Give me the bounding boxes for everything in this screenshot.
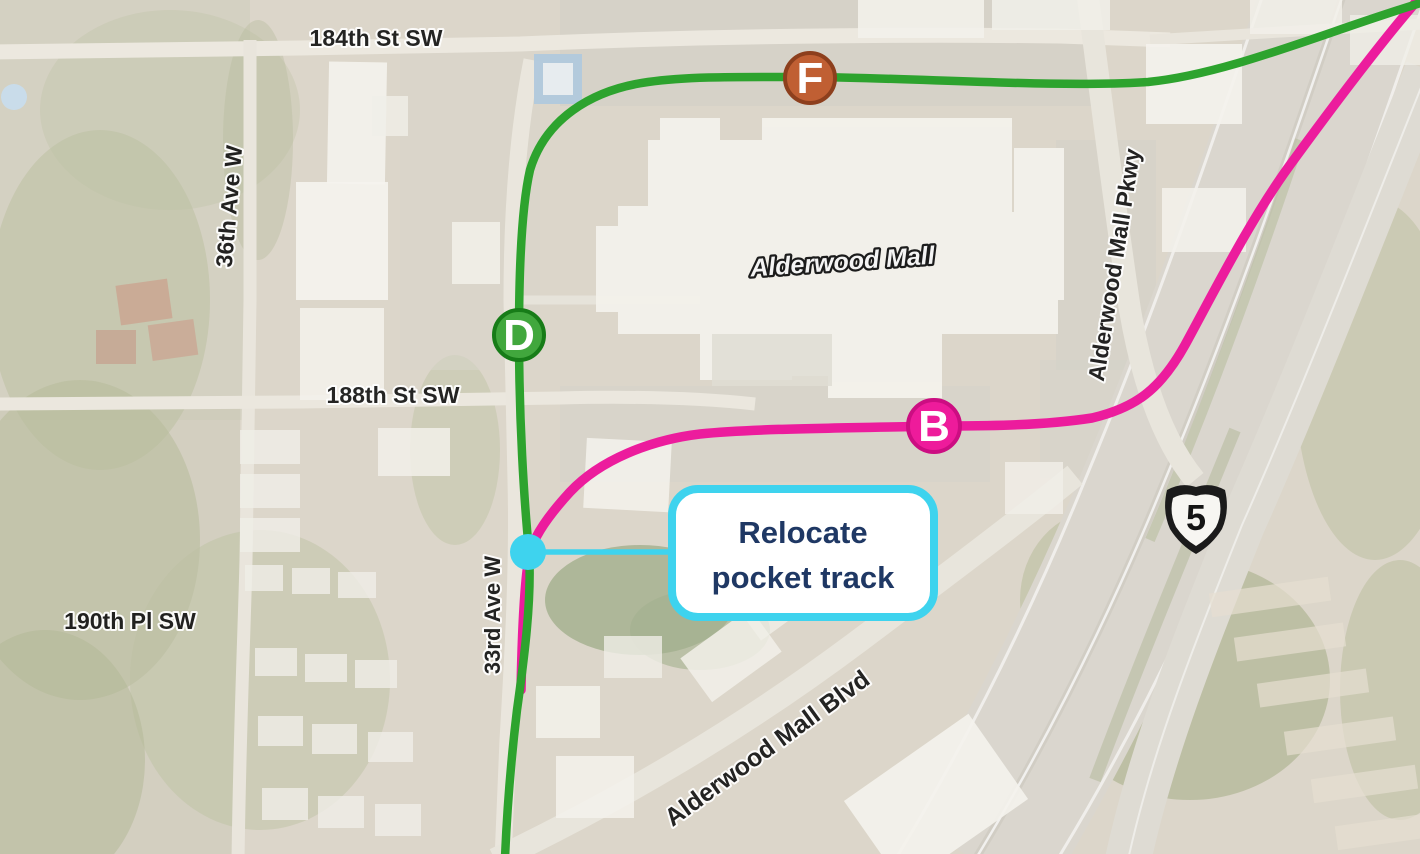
- callout-text-line2: pocket track: [712, 560, 895, 595]
- pocket-track-dot: [510, 534, 546, 570]
- route-marker-b-letter: B: [918, 402, 950, 451]
- route-marker-f-letter: F: [797, 54, 824, 103]
- route-marker-d: D: [494, 310, 544, 360]
- street-label-188th-st-sw: 188th St SW: [327, 382, 460, 408]
- route-marker-d-letter: D: [503, 311, 535, 360]
- street-label-33rd-ave-w: 33rd Ave W: [480, 556, 505, 674]
- shield-route-number: 5: [1186, 497, 1206, 538]
- street-label-184th-st-sw: 184th St SW: [310, 25, 443, 51]
- callout-box: [672, 489, 934, 617]
- street-label-190th-pl-sw: 190th Pl SW: [64, 608, 196, 634]
- route-marker-f: F: [785, 53, 835, 103]
- callout-text-line1: Relocate: [738, 515, 867, 550]
- route-marker-b: B: [908, 400, 960, 452]
- satellite-background: [0, 0, 1420, 854]
- map-canvas: 184th St SW 36th Ave W 188th St SW 190th…: [0, 0, 1420, 854]
